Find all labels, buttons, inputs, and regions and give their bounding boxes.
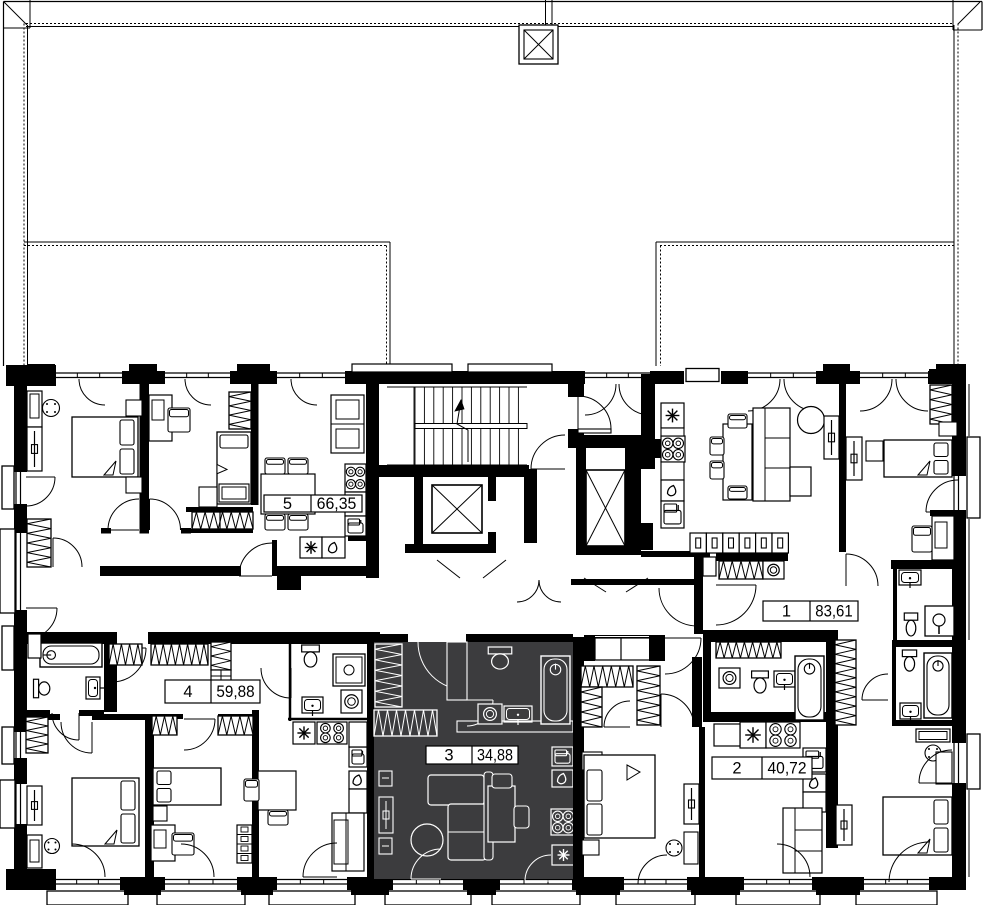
svg-text:5: 5 [283, 495, 292, 513]
svg-text:1: 1 [782, 603, 791, 621]
svg-text:3: 3 [444, 747, 453, 765]
svg-text:66,35: 66,35 [317, 495, 357, 513]
svg-text:34,88: 34,88 [477, 747, 513, 765]
svg-text:2: 2 [732, 760, 741, 778]
svg-text:59,88: 59,88 [216, 683, 254, 701]
svg-text:40,72: 40,72 [768, 760, 807, 778]
svg-text:4: 4 [183, 683, 192, 701]
svg-text:83,61: 83,61 [815, 603, 852, 621]
